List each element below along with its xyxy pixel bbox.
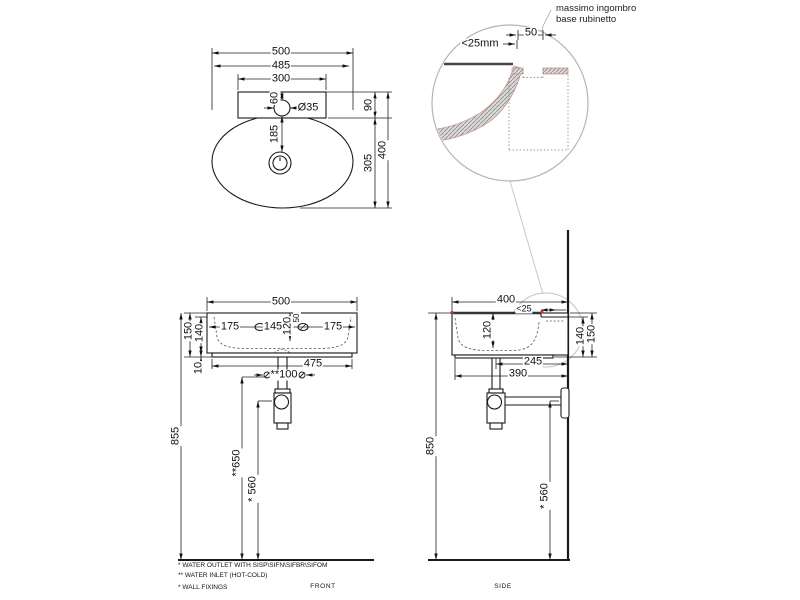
dim-topview-width-485: 485 (271, 61, 291, 72)
dim-front-fixings-100: **100 (270, 370, 299, 381)
dim-topview-400: 400 (378, 140, 389, 160)
front-view-basin (178, 313, 374, 560)
dim-front-175-right: 175 (323, 322, 343, 333)
front-view-label: FRONT (309, 584, 336, 591)
top-view-basin (212, 92, 353, 208)
dim-front-650: **650 (232, 449, 243, 478)
dim-front-855: 855 (171, 426, 182, 446)
dim-front-50: 50 (293, 313, 301, 324)
side-view-basin (428, 230, 570, 560)
dim-front-10: 10 (194, 361, 205, 375)
dim-side-560: * 560 (540, 482, 551, 510)
dim-topview-60: 60 (270, 91, 281, 105)
dim-front-width-500: 500 (271, 297, 291, 308)
dim-faucet-hole-diameter: Ø35 (297, 103, 320, 114)
dim-front-175-left: 175 (220, 322, 240, 333)
dim-topview-305: 305 (364, 153, 375, 173)
dim-front-145: 145 (263, 322, 283, 333)
dim-front-475: 475 (303, 359, 323, 370)
dim-side-depth-400: 400 (496, 295, 516, 306)
dim-side-120: 120 (483, 320, 494, 340)
dim-side-390: 390 (508, 369, 528, 380)
note-water-outlet: * WATER OUTLET WITH SISP\SIFN\SIFBR\SIFO… (178, 563, 327, 570)
dim-side-150: 150 (587, 324, 598, 344)
detail-label-line2: base rubinetto (556, 15, 616, 26)
dim-topview-90: 90 (364, 98, 375, 112)
dim-detail-25mm: <25mm (461, 39, 500, 50)
dim-side-850: 850 (426, 436, 437, 456)
note-water-inlet: ** WATER INLET (HOT-COLD) (178, 573, 267, 580)
dim-front-140: 140 (195, 323, 206, 343)
dim-side-245: 245 (523, 357, 543, 368)
dim-topview-185: 185 (270, 124, 281, 144)
note-wall-fixings: * WALL FIXINGS (178, 585, 227, 592)
technical-drawing-sheet: 500 485 300 60 Ø35 185 90 305 400 500 17… (0, 0, 800, 600)
dim-front-560: * 560 (248, 475, 259, 503)
detail-view (426, 25, 588, 181)
dim-topview-width-500: 500 (271, 47, 291, 58)
dim-detail-50: 50 (524, 28, 538, 39)
drawing-linework (0, 0, 800, 600)
dim-side-25: <25 (515, 305, 532, 314)
side-view-label: SIDE (493, 584, 513, 591)
dim-topview-width-300: 300 (271, 74, 291, 85)
